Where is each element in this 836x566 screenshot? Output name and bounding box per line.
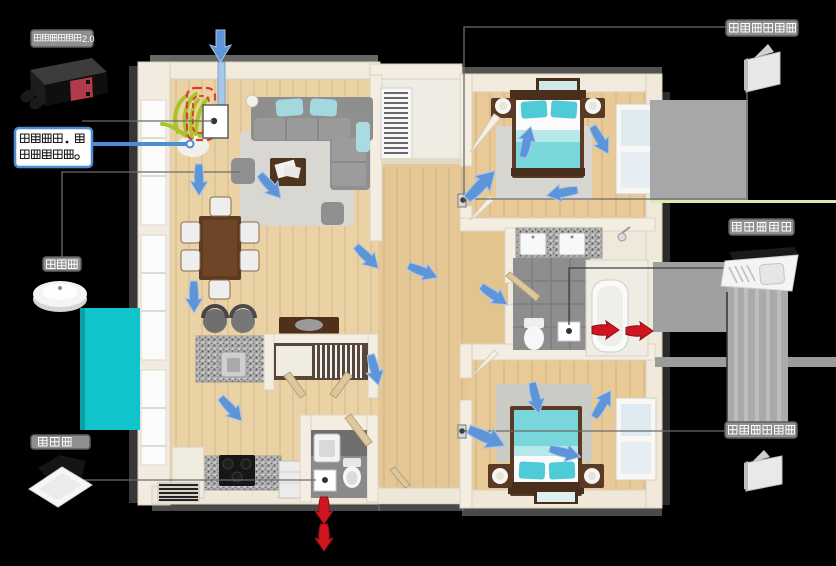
svg-text:2.0: 2.0 bbox=[82, 34, 95, 44]
